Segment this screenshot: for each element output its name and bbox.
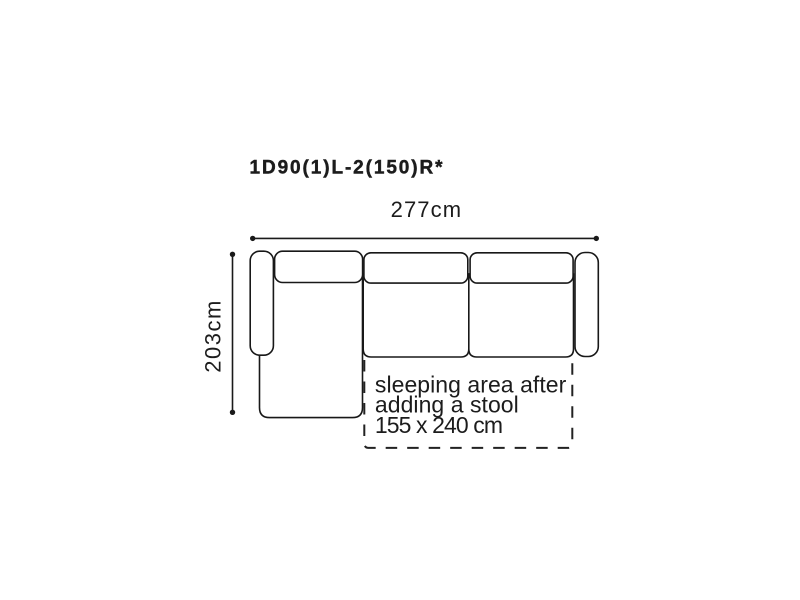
- svg-text:203cm: 203cm: [200, 299, 225, 373]
- svg-text:1D90(1)L-2(150)R*: 1D90(1)L-2(150)R*: [250, 157, 445, 178]
- svg-text:155 x 240 cm: 155 x 240 cm: [375, 412, 502, 438]
- svg-text:277cm: 277cm: [391, 197, 463, 222]
